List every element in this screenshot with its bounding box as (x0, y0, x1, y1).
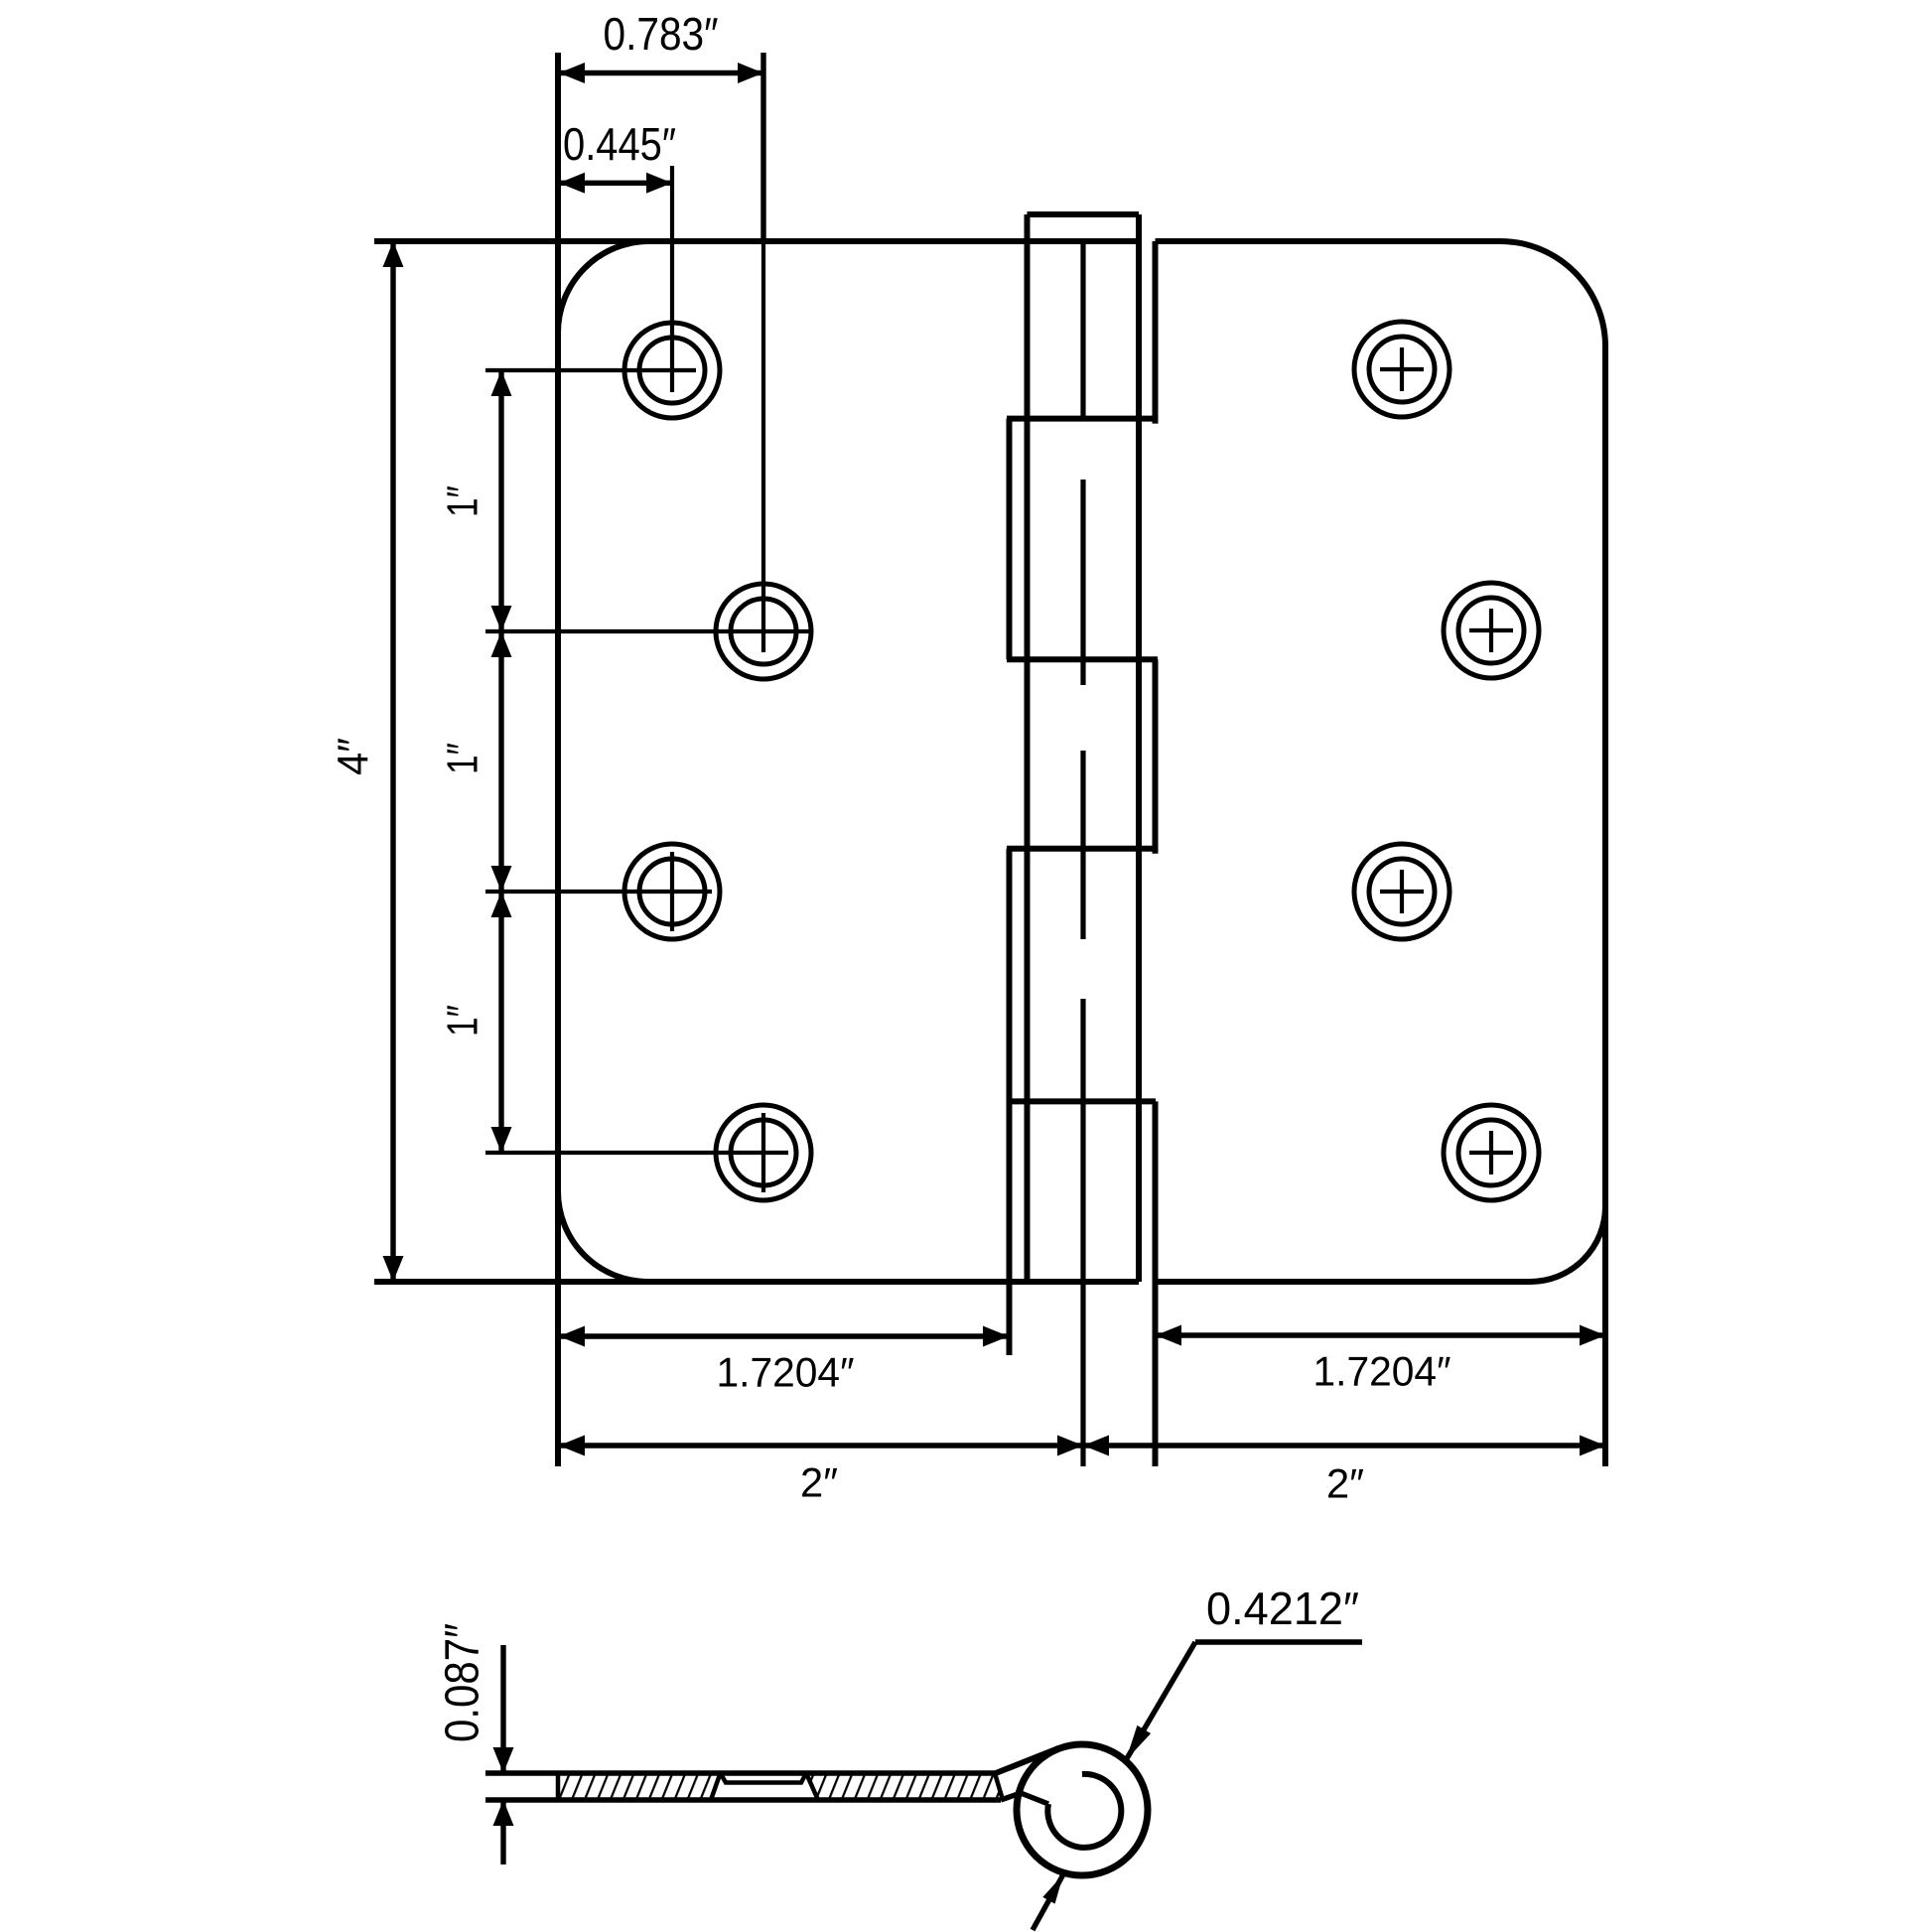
svg-text:1″: 1″ (439, 485, 487, 517)
svg-text:1.7204″: 1.7204″ (717, 1349, 855, 1396)
svg-text:2″: 2″ (1326, 1460, 1364, 1507)
svg-text:1″: 1″ (439, 1005, 487, 1036)
svg-text:0.445″: 0.445″ (563, 118, 676, 170)
svg-text:0.087″: 0.087″ (437, 1623, 489, 1742)
svg-text:4″: 4″ (330, 738, 378, 775)
svg-text:0.783″: 0.783″ (604, 8, 719, 60)
svg-text:1.7204″: 1.7204″ (1313, 1348, 1451, 1395)
svg-text:1″: 1″ (439, 743, 487, 774)
svg-text:2″: 2″ (800, 1459, 838, 1506)
svg-text:0.4212″: 0.4212″ (1206, 1583, 1359, 1634)
